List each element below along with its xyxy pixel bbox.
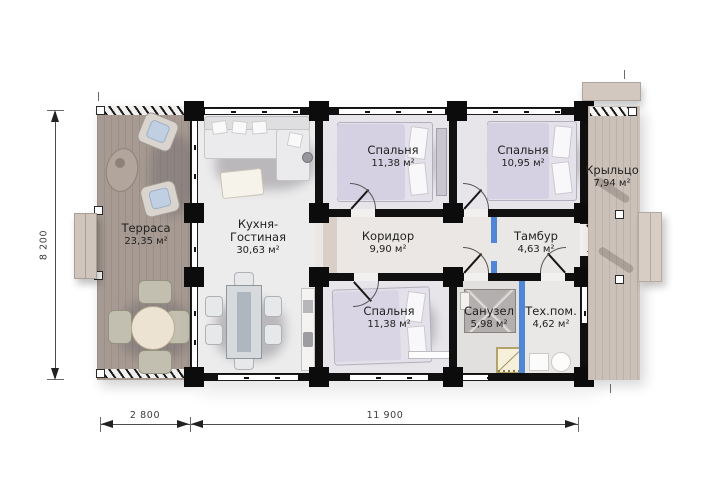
- terrace-post: [96, 369, 105, 378]
- floor-plan: Терраса 23,35 м² Кухня- Гостиная 30,63 м…: [0, 0, 710, 502]
- glass-wall: [191, 287, 198, 367]
- coffee-table: [220, 168, 265, 199]
- door-opening: [353, 273, 379, 281]
- axis-tick: [610, 384, 611, 393]
- dimension-arrow-right: [177, 420, 189, 428]
- boiler-unit: [529, 353, 549, 371]
- window: [461, 374, 488, 381]
- wall-post: [184, 367, 204, 387]
- dimension-arrow-right: [565, 420, 577, 428]
- room-label-tambur: Тамбур 4,63 м²: [514, 230, 558, 256]
- porch-steps-line: [650, 213, 651, 281]
- dimension-arrow-up: [51, 110, 59, 122]
- bedroom-divider-top: [449, 115, 457, 209]
- axis-tick: [98, 92, 99, 101]
- dimension-house-label: 11 900: [367, 410, 404, 421]
- wall-post: [309, 203, 329, 223]
- dining-chair: [264, 296, 282, 317]
- room-label-bathroom: Санузел 5,98 м²: [464, 305, 514, 331]
- terrace-side-table-decor: [115, 158, 125, 168]
- wall-post: [443, 367, 463, 387]
- room-label-techroom: Тех.пом. 4,62 м²: [525, 305, 576, 331]
- sofa-pillow: [211, 120, 228, 135]
- dining-chair: [264, 324, 282, 345]
- porch-canopy: [582, 82, 641, 101]
- window: [467, 108, 561, 115]
- partition-corridor-tambur: [491, 261, 497, 273]
- terrace-steps-line: [85, 214, 86, 278]
- corridor-wall-top: [489, 209, 580, 217]
- porch-edge-hatch: [590, 107, 630, 116]
- porch-post: [615, 210, 624, 219]
- wall-post: [443, 267, 463, 287]
- kitchen-appliance: [303, 300, 313, 313]
- room-label-terrace: Терраса 23,35 м²: [121, 222, 170, 248]
- wardrobe-shelf: [408, 351, 450, 359]
- terrace-round-table: [131, 306, 175, 350]
- dining-table-runner: [237, 292, 251, 352]
- wall-post: [443, 203, 463, 223]
- room-label-bedroom1: Спальня 11,38 м²: [367, 144, 418, 170]
- kitchen-sink: [303, 332, 313, 347]
- wall-post: [309, 367, 329, 387]
- bedside-dresser: [436, 128, 447, 196]
- wall-post: [309, 267, 329, 287]
- porch-post: [615, 275, 624, 284]
- window: [350, 374, 428, 381]
- door-opening: [350, 209, 376, 217]
- dimension-arrow-left: [101, 420, 113, 428]
- room-label-porch: Крыльцо 7,94 м²: [585, 164, 639, 190]
- dimension-line-horizontal: [100, 424, 578, 425]
- room-label-kitchen-living: Кухня- Гостиная 30,63 м²: [230, 218, 286, 257]
- partition-bath-tech: [519, 281, 525, 373]
- bedroom-divider-bottom: [449, 281, 457, 373]
- bed-pillow: [551, 161, 573, 195]
- wall-post: [184, 101, 204, 121]
- room-label-corridor: Коридор 9,90 м²: [362, 230, 414, 256]
- partition-corridor-tambur: [491, 217, 497, 243]
- window: [339, 108, 445, 115]
- terrace-post: [96, 106, 105, 115]
- sofa-pillow: [251, 120, 267, 134]
- door-opening: [463, 209, 489, 217]
- water-tank: [551, 352, 571, 372]
- room-label-bedroom3: Спальня 11,38 м²: [363, 305, 414, 331]
- dining-chair: [205, 324, 223, 345]
- wall-post: [309, 101, 329, 121]
- terrace-chair: [138, 350, 172, 374]
- door-opening: [463, 273, 489, 281]
- glass-wall: [191, 223, 198, 267]
- corridor-wall-bottom: [489, 273, 540, 281]
- window: [218, 374, 298, 381]
- wall-post: [184, 267, 204, 287]
- passage-opening: [315, 221, 323, 267]
- floor-lamp: [302, 152, 313, 163]
- sofa-pillow: [287, 132, 304, 149]
- dimension-arrow-down: [51, 368, 59, 380]
- bed-pillow: [551, 125, 572, 159]
- window: [205, 108, 300, 115]
- terrace-chair: [138, 280, 172, 304]
- window: [581, 287, 588, 323]
- axis-tick: [624, 70, 625, 79]
- porch-post: [628, 107, 637, 116]
- glass-wall: [191, 121, 198, 203]
- dimension-line-vertical: [55, 112, 56, 378]
- wall-post: [184, 203, 204, 223]
- sofa-pillow: [231, 120, 247, 134]
- door-opening: [540, 273, 566, 281]
- dining-chair: [205, 296, 223, 317]
- porch-deck: [588, 106, 640, 380]
- room-label-bedroom2: Спальня 10,95 м²: [497, 144, 548, 170]
- dimension-terrace-label: 2 800: [130, 410, 160, 421]
- terrace-chair: [108, 310, 132, 344]
- dimension-witness: [578, 417, 579, 432]
- dimension-arrow-left: [191, 420, 203, 428]
- wall-post: [447, 101, 467, 121]
- dimension-height-label: 8 200: [39, 230, 50, 260]
